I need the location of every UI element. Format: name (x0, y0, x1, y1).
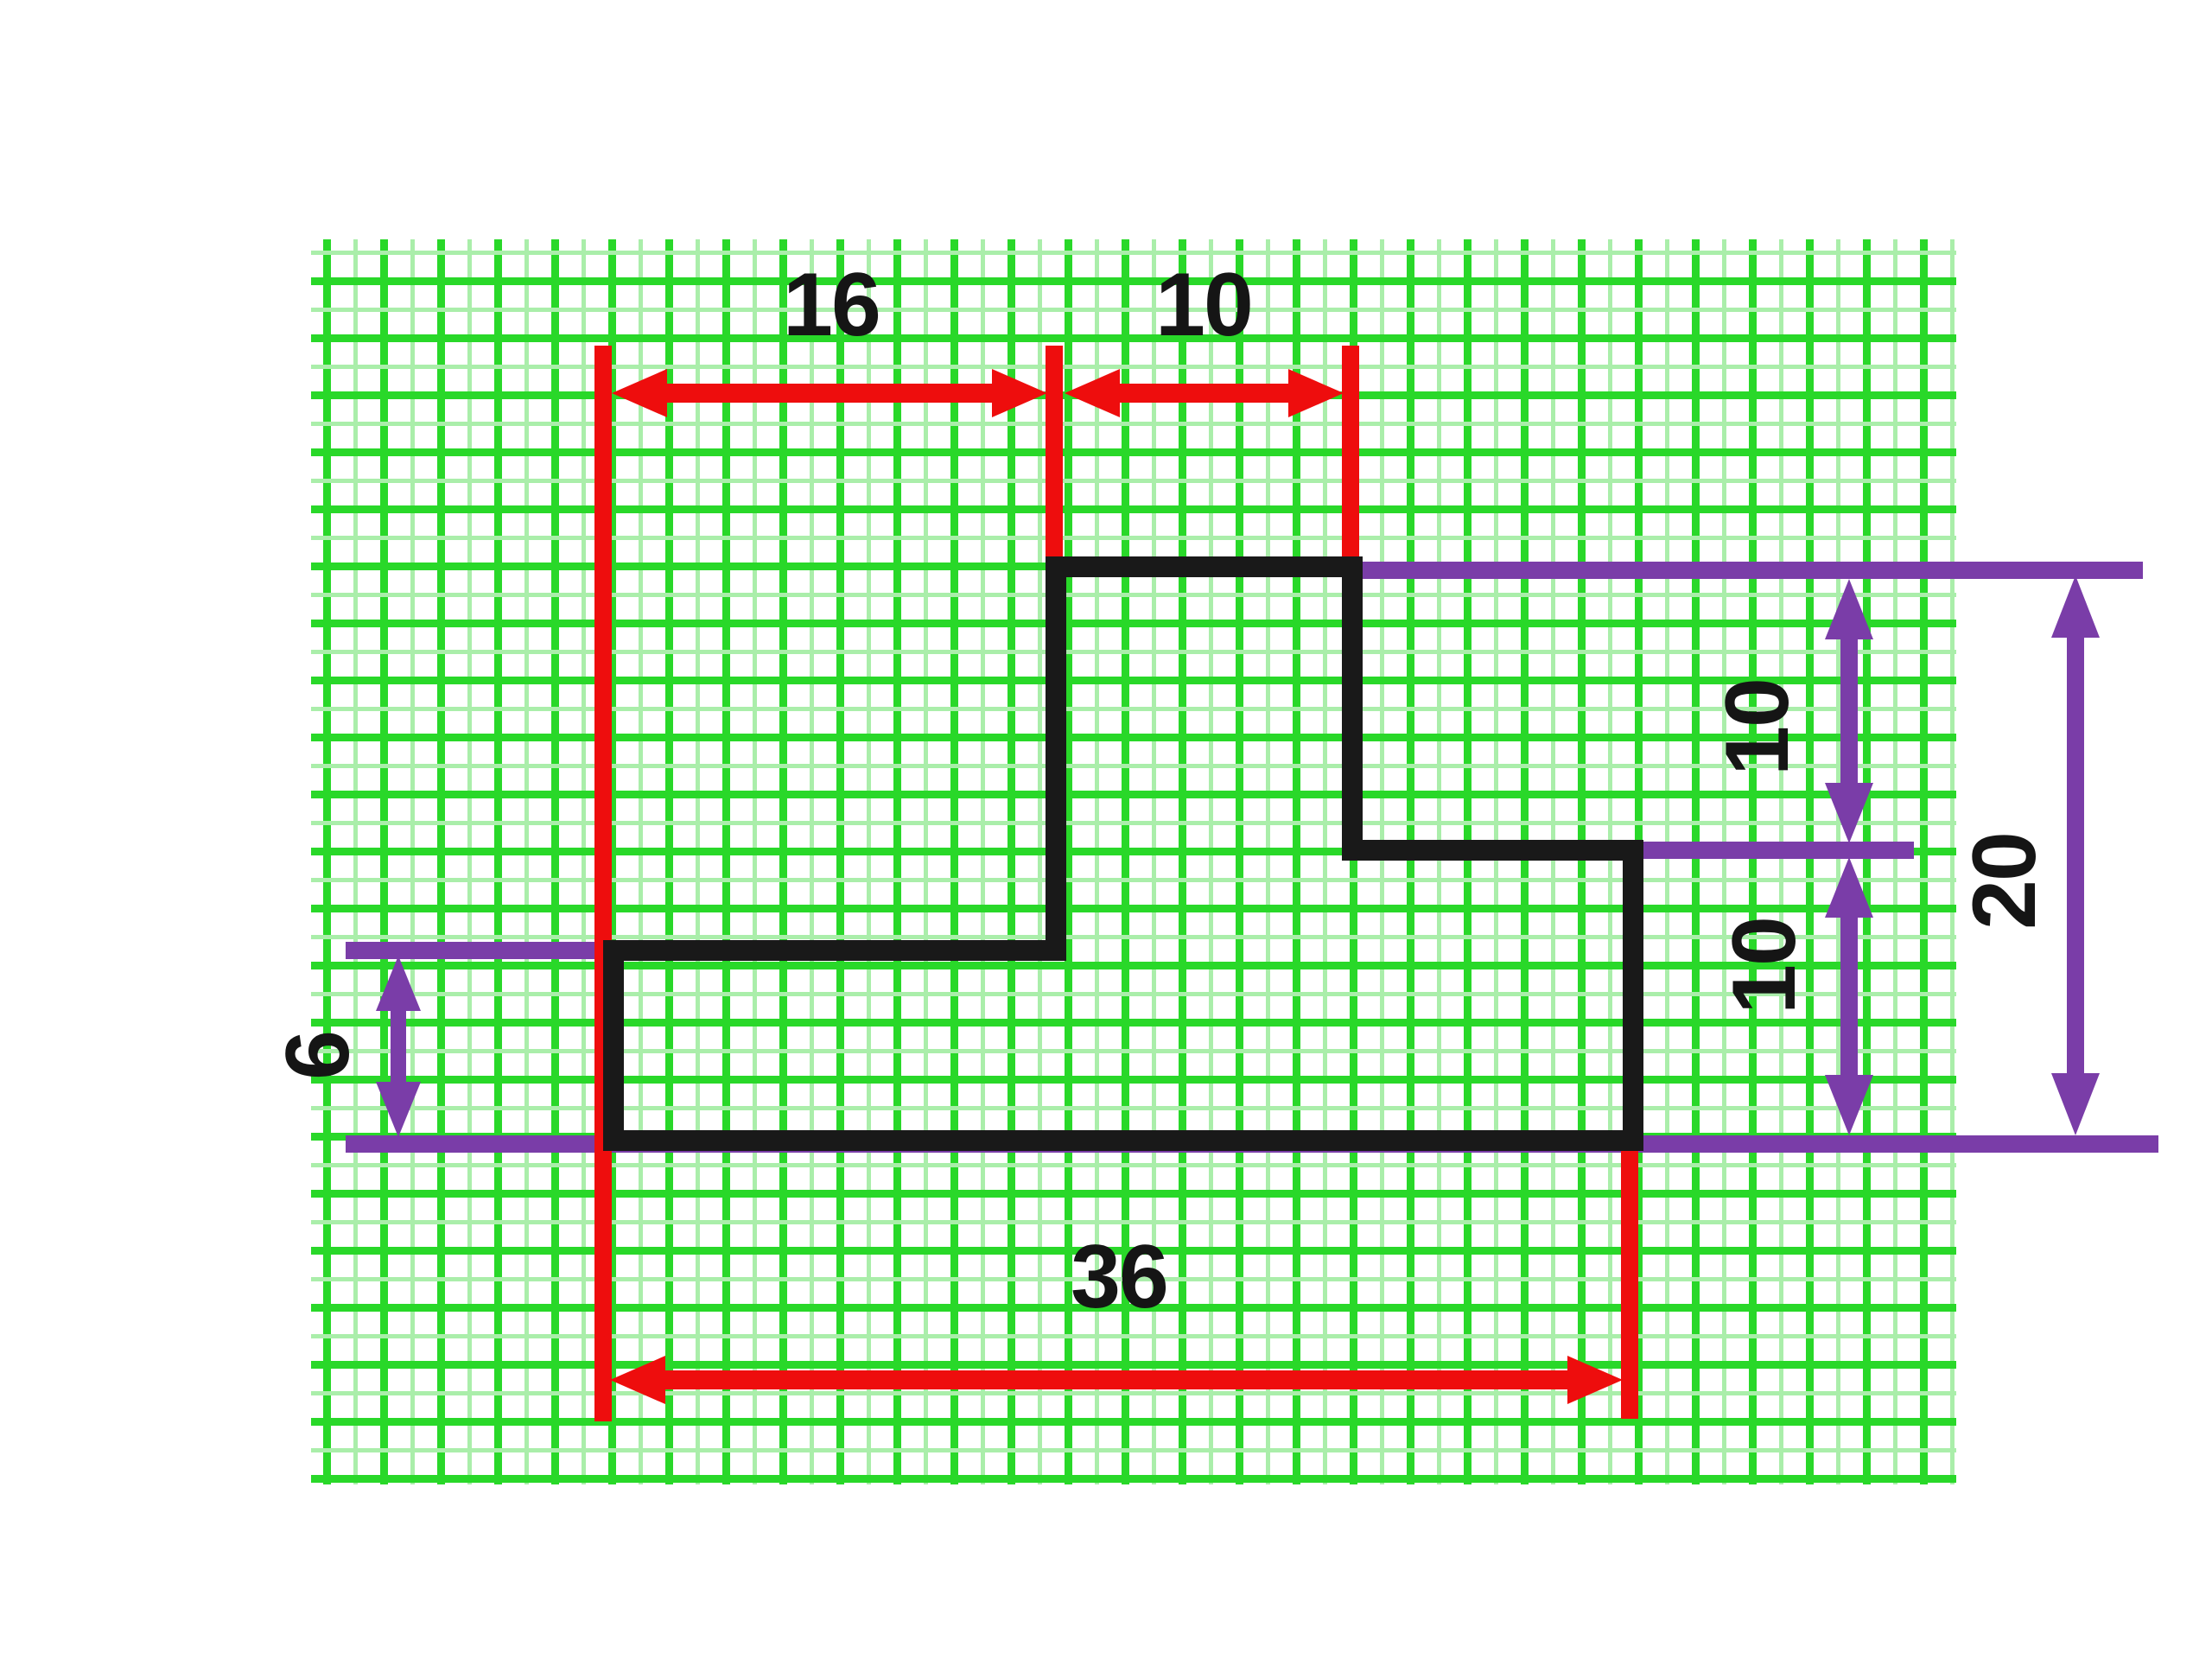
red-ext-line-bottom-right (1621, 1142, 1638, 1419)
dim-arrow-10-right-lower-head-bottom (1825, 1075, 1873, 1135)
red-ext-line-right (1342, 346, 1359, 569)
red-ext-line-left (594, 346, 612, 1421)
dim-arrow-20-head-bottom (2051, 1073, 2100, 1135)
dim-label-10-right-lower: 10 (1719, 918, 1809, 1014)
dim-label-20: 20 (1960, 833, 2050, 930)
dim-arrow-36 (610, 1356, 1623, 1404)
dim-arrow-10-right-lower-head-top (1825, 857, 1873, 918)
purple-ref-line-left-step (346, 942, 615, 959)
dim-arrow-10-top-head-left (1065, 369, 1120, 417)
dim-arrow-6-head-top (376, 956, 421, 1011)
dim-arrow-10-right-upper-head-top (1825, 579, 1873, 639)
dim-label-36: 36 (1071, 1232, 1167, 1322)
dim-arrow-10-right-upper (1825, 579, 1873, 843)
dim-arrow-16 (612, 369, 1047, 417)
dim-arrow-10-right-upper-head-bottom (1825, 783, 1873, 843)
dim-arrow-16-head-left (612, 369, 667, 417)
dim-arrow-6-head-bottom (376, 1082, 421, 1137)
dim-arrow-10-right-lower (1825, 857, 1873, 1135)
dim-arrow-20 (2051, 575, 2100, 1135)
dim-arrow-10-top-head-right (1288, 369, 1344, 417)
shape-outline (613, 567, 1633, 1141)
dim-arrow-36-line (658, 1370, 1576, 1389)
purple-ref-line-step (1633, 842, 1914, 859)
dim-arrow-6-line (391, 1004, 406, 1090)
red-ext-line-mid (1046, 346, 1063, 569)
dim-arrow-20-line (2067, 627, 2084, 1087)
dim-arrow-20-head-top (2051, 575, 2100, 638)
dim-arrow-10-top (1065, 369, 1344, 417)
dim-label-16: 16 (783, 260, 880, 350)
dim-arrow-16-line (660, 384, 999, 403)
dim-arrow-36-head-right (1567, 1356, 1623, 1404)
dim-arrow-6 (376, 956, 421, 1137)
dim-label-6: 6 (273, 1032, 363, 1080)
drawing-overlay (0, 0, 2212, 1659)
drawing-canvas: 16 10 36 6 10 10 20 (0, 0, 2212, 1659)
dim-arrow-36-head-left (610, 1356, 665, 1404)
dim-arrow-10-right-lower-line (1840, 907, 1858, 1085)
dim-label-10-right-upper: 10 (1713, 679, 1802, 776)
dim-label-10-top: 10 (1155, 260, 1252, 350)
purple-ref-line-top-right (1352, 562, 2143, 579)
dim-arrow-16-head-right (992, 369, 1047, 417)
dim-arrow-10-top-line (1113, 384, 1299, 403)
dim-arrow-10-right-upper-line (1840, 629, 1858, 795)
